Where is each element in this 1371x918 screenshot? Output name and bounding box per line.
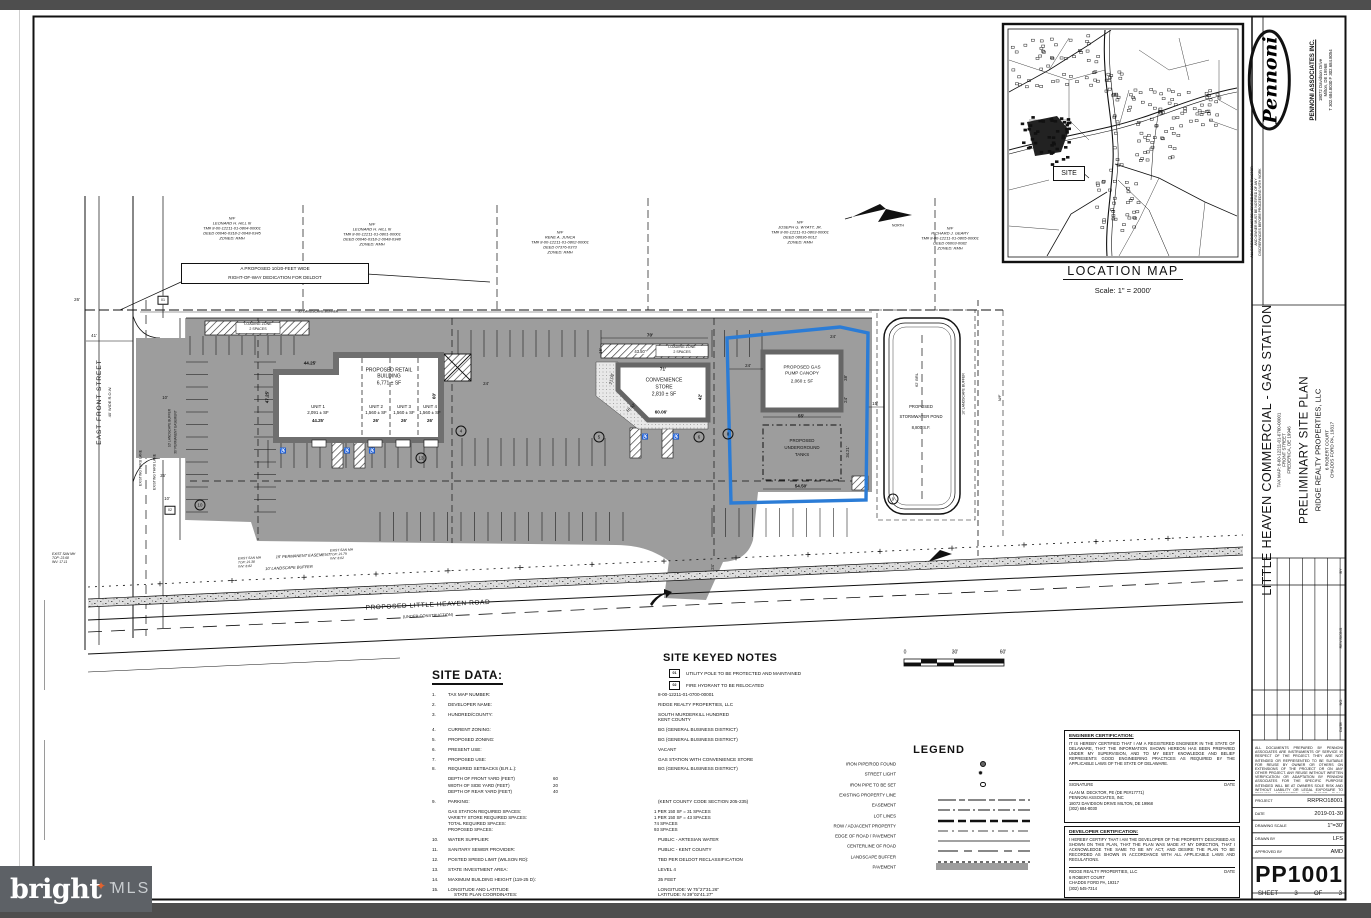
site-data-label-line: SANITARY SEWER PROVIDER: xyxy=(448,847,658,852)
site-data-num: 14. xyxy=(432,877,448,882)
parking-count-bubble: 10 xyxy=(195,500,206,511)
firm-address-block: PENNONI ASSOCIATES INC. 18072 Davidson D… xyxy=(1310,39,1334,120)
site-keyed-notes-section: SITE KEYED NOTES 01UTILITY POLE TO BE PR… xyxy=(663,652,883,693)
site-data-value: 35 FEET xyxy=(658,877,676,882)
map-block xyxy=(1160,93,1163,95)
keyed-note-text: FIRE HYDRANT TO BE RELOCATED xyxy=(686,683,764,688)
map-block xyxy=(1040,68,1043,70)
site-data-label: LONGITUDE AND LATITUDESTATE PLAN COORDIN… xyxy=(448,887,658,898)
dimension-label: UNIT 3 xyxy=(397,405,411,409)
scale-bar: 0 30' 60' xyxy=(903,648,1007,670)
site-data-num: 4. xyxy=(432,727,448,732)
map-block xyxy=(1068,122,1071,124)
map-block xyxy=(1065,128,1068,130)
legend-symbol-centerline xyxy=(936,842,1032,850)
legend-label: PAVEMENT xyxy=(818,865,896,870)
map-block xyxy=(1127,109,1130,111)
map-block xyxy=(1029,146,1032,148)
map-block xyxy=(1062,135,1065,137)
map-block xyxy=(1066,83,1069,85)
legend-symbol-iron-set xyxy=(936,781,986,789)
brightmls-watermark: bright✦™ MLS xyxy=(0,866,152,912)
site-data-row: 9.PARKING:(KENT COUNTY CODE SECTION 205-… xyxy=(432,799,768,804)
site-data-value: LONGITUDE: W 75°27'31.26"LATITUDE: N 39°… xyxy=(658,887,719,898)
info-row: APPROVED BYAMD xyxy=(1252,845,1346,858)
site-data-row: 12.POSTED SPEED LIMIT (WILSON RD):TBD PE… xyxy=(432,857,768,862)
dimension-label: 1,560 ± SF xyxy=(419,411,440,415)
dimension-label: 30' LANDSCAPE BUFFER xyxy=(298,310,338,313)
map-block xyxy=(1018,76,1021,78)
legend-symbol-pavement xyxy=(936,863,1028,871)
map-block xyxy=(1160,137,1163,139)
site-data-row: 2.DEVELOPER NAME:RIDGE REALTY PROPERTIES… xyxy=(432,702,768,707)
parking-count-bubble: 4 xyxy=(456,426,467,437)
pennoni-logo-text: Pennoni xyxy=(1259,36,1281,124)
info-value: RRPRO18001 xyxy=(1307,798,1343,804)
site-data-value: BG (GENERAL BUSINESS DISTRICT) xyxy=(658,766,738,771)
dimension-label: 44.25' xyxy=(312,419,324,423)
map-block xyxy=(1060,118,1063,120)
sheet-total: 3 xyxy=(1339,891,1342,897)
map-block xyxy=(1034,142,1037,144)
dimension-label: 62' BRL xyxy=(915,373,919,387)
parcel-label-line: ZONED: RMH xyxy=(307,242,437,247)
location-map-scale: Scale: 1" = 2000' xyxy=(1095,286,1151,295)
dimension-label: 2,810 ± SF xyxy=(652,393,676,398)
site-data-section: SITE DATA: 1.TAX MAP NUMBER:8-00-12211-0… xyxy=(432,666,768,902)
map-block xyxy=(1028,128,1031,130)
handicap-icon: ♿ xyxy=(280,449,287,455)
site-data-value-line: (KENT COUNTY CODE SECTION 205-235) xyxy=(658,799,748,804)
star-icon: ✦ xyxy=(96,879,106,893)
project-title: LITTLE HEAVEN COMMERCIAL - GAS STATION xyxy=(1260,304,1274,595)
convenience-store-label: CONVENIENCE xyxy=(646,379,683,384)
handicap-icon: ♿ xyxy=(369,449,376,455)
sheet-number: PP1001 xyxy=(1252,861,1346,888)
keyed-note-key: 01 xyxy=(669,669,680,678)
site-data-num: 1. xyxy=(432,692,448,697)
site-data-row: 8.REQUIRED SETBACKS (B.R.L.):BG (GENERAL… xyxy=(432,766,768,771)
dimension-label: 1,560 ± SF xyxy=(393,411,414,415)
site-data-num: 7. xyxy=(432,757,448,762)
map-block xyxy=(1177,134,1180,136)
keyed-note-item: 01UTILITY POLE TO BE PROTECTED AND MAINT… xyxy=(669,669,883,678)
map-block xyxy=(1066,156,1069,158)
parcel-label-line: ZONED: RMH xyxy=(735,240,865,245)
map-block xyxy=(1086,50,1089,52)
dimension-label: UNDERGROUND xyxy=(784,446,819,450)
dimension-label: 2 SPACES xyxy=(248,328,267,332)
site-data-num: 2. xyxy=(432,702,448,707)
map-block xyxy=(1011,46,1014,48)
dimension-label: 24' xyxy=(830,335,836,339)
map-block xyxy=(1147,134,1150,136)
keyed-notes-title: SITE KEYED NOTES xyxy=(663,652,883,664)
map-block xyxy=(1137,140,1140,142)
map-block xyxy=(1214,124,1217,126)
map-block xyxy=(1108,88,1111,90)
map-block xyxy=(1137,202,1140,204)
site-data-label: STATE INVESTMENT AREA: xyxy=(448,867,658,872)
callout-line: RIGHT-OF-WAY DEDICATION FOR DELDOT xyxy=(182,274,368,283)
site-data-subrow: TOTAL REQUIRED SPACES:74 SPACES xyxy=(448,821,768,826)
map-block xyxy=(1055,161,1058,163)
manhole-note: EXIST SAN MHTOP: 23.68INV: 17.11 xyxy=(52,552,75,564)
map-block xyxy=(1116,121,1119,123)
legend-label: IRON PIPE TO BE SET xyxy=(818,782,896,787)
site-data-subrow: GAS STATION REQUIRED SPACES:1 PER 150 SF… xyxy=(448,809,768,814)
map-block xyxy=(1056,80,1059,82)
dimension-label: 44.25' xyxy=(304,362,317,367)
scale-zero: 0 xyxy=(904,651,907,656)
site-data-row: 11.SANITARY SEWER PROVIDER:PUBLIC - KENT… xyxy=(432,847,768,852)
map-block xyxy=(1133,211,1136,213)
site-data-title: SITE DATA: xyxy=(432,668,503,685)
map-block xyxy=(1063,121,1066,123)
map-block xyxy=(1050,152,1053,154)
map-block xyxy=(1040,40,1043,42)
map-block xyxy=(1173,147,1176,149)
site-data-label: PROPOSED ZONING: xyxy=(448,737,658,742)
legend-symbol-easement xyxy=(936,801,1032,809)
map-block xyxy=(1181,112,1184,114)
dimension-label: 10' xyxy=(164,497,169,501)
dimension-label: 24' xyxy=(745,364,751,368)
site-data-sub-value: 40 xyxy=(553,789,558,794)
handicap-icon: ♿ xyxy=(673,435,680,441)
info-row: PROJECTRRPRO18001 xyxy=(1252,795,1346,808)
dimension-label: 2 SPACES xyxy=(672,351,691,355)
dimension-label: EXISTING THRU LANE xyxy=(139,450,142,486)
keyed-note-key: 02 xyxy=(669,681,680,690)
map-block xyxy=(1111,209,1114,211)
dimension-label: 26' xyxy=(401,419,407,423)
map-block xyxy=(1056,130,1059,132)
dimension-label: STORE xyxy=(655,386,672,391)
site-data-value-line: PUBLIC - KENT COUNTY xyxy=(658,847,712,852)
map-block xyxy=(1048,136,1051,138)
legend-label: IRON PIPE/ROD FOUND xyxy=(818,762,896,767)
info-label: APPROVED BY xyxy=(1255,850,1282,854)
map-block xyxy=(1129,94,1132,96)
map-block xyxy=(1036,57,1039,59)
map-block xyxy=(1151,141,1154,143)
dimension-label: 26' xyxy=(74,298,80,302)
legend-label: STREET LIGHT xyxy=(818,772,896,777)
map-block xyxy=(1060,57,1063,59)
site-data-label: POSTED SPEED LIMIT (WILSON RD): xyxy=(448,857,658,862)
map-block xyxy=(1113,147,1116,149)
callout-line: A PROPOSED 10/20-FEET WIDE xyxy=(182,265,368,274)
map-block xyxy=(1021,123,1024,125)
dimension-label: 60.06' xyxy=(655,411,668,416)
site-data-value: BG (GENERAL BUSINESS DISTRICT) xyxy=(658,737,738,742)
dimension-label: 70' xyxy=(647,334,653,339)
site-data-num: 9. xyxy=(432,799,448,804)
site-data-value-line: LATITUDE: N 39°02'41.27" xyxy=(658,892,719,897)
map-block xyxy=(1165,130,1168,132)
site-data-label-line: STATE PLAN COORDINATES: xyxy=(448,892,658,897)
site-data-label: MAXIMUM BUILDING HEIGHT (119-25 D): xyxy=(448,877,658,882)
engineer-cert-title: ENGINEER CERTIFICATION: xyxy=(1069,734,1235,739)
legend-label: EXISTING PROPERTY LINE xyxy=(818,792,896,797)
site-data-row: 15.LONGITUDE AND LATITUDESTATE PLAN COOR… xyxy=(432,887,768,898)
developer-name: RIDGE REALTY PROPERTIES, LLC xyxy=(1069,869,1137,874)
site-data-label-line: WATER SUPPLIER: xyxy=(448,837,658,842)
dimension-disclaimer: ALL DIMENSIONS MUST BE VERIFIED BY CONTR… xyxy=(1251,166,1263,257)
map-block xyxy=(1208,104,1211,106)
info-row: DRAWN BYLFS xyxy=(1252,833,1346,846)
keyed-note-marker: 02 xyxy=(165,506,176,515)
map-block xyxy=(1126,201,1129,203)
gas-canopy-label: PROPOSED GAS xyxy=(783,366,820,371)
site-data-sub-value: 1 PER 150 SF = 43 SPACES xyxy=(654,815,711,820)
dimension-label: STORMWATER POND xyxy=(900,415,943,419)
info-value: 2019-01-30 xyxy=(1314,811,1343,817)
map-block xyxy=(1085,77,1088,79)
map-block xyxy=(1187,91,1190,93)
site-data-row: 13.STATE INVESTMENT AREA:LEVEL 4 xyxy=(432,867,768,872)
map-block xyxy=(1085,40,1088,42)
location-map-drawing xyxy=(1009,30,1237,256)
client-address2: CHADDS FORD PA, 19317 xyxy=(1330,389,1335,512)
manhole-note: EXIST SAN MHTOP: 21.79INV: 8.02 xyxy=(330,547,354,560)
row-dedication-callout: A PROPOSED 10/20-FEET WIDERIGHT-OF-WAY D… xyxy=(181,263,369,284)
map-block xyxy=(1101,226,1104,228)
site-data-subrow: VARIETY STORE REQUIRED SPACES:1 PER 150 … xyxy=(448,815,768,820)
site-data-label-line: PRESENT USE: xyxy=(448,747,658,752)
legend-symbol-iron-found xyxy=(936,760,986,768)
map-block xyxy=(1098,189,1101,191)
site-data-label: SANITARY SEWER PROVIDER: xyxy=(448,847,658,852)
map-block xyxy=(1015,83,1018,85)
revisions-by-label: BY xyxy=(1339,568,1343,573)
site-data-label-line: PARKING: xyxy=(448,799,658,804)
site-data-value: BG (GENERAL BUSINESS DISTRICT) xyxy=(658,727,738,732)
map-block xyxy=(1148,104,1151,106)
site-data-label-line: REQUIRED SETBACKS (B.R.L.): xyxy=(448,766,658,771)
dimension-label: 24' xyxy=(844,397,848,403)
site-data-sub-value: 20 xyxy=(553,783,558,788)
map-block xyxy=(1121,229,1124,231)
dimension-label: 40' WIDE R.O.W. xyxy=(108,387,112,418)
map-block xyxy=(1116,99,1119,101)
site-data-label-line: POSTED SPEED LIMIT (WILSON RD): xyxy=(448,857,658,862)
map-block xyxy=(1153,91,1156,93)
site-data-subrow: DEPTH OF REAR YARD (FEET)40 xyxy=(448,789,768,794)
map-block xyxy=(1144,151,1147,153)
info-label: PROJECT xyxy=(1255,799,1273,803)
keyed-note-text: UTILITY POLE TO BE PROTECTED AND MAINTAI… xyxy=(686,671,801,676)
map-block xyxy=(1141,101,1144,103)
map-block xyxy=(1126,214,1129,216)
dimension-label: 6,771 ± SF xyxy=(377,382,401,387)
site-data-value-line: KENT COUNTY xyxy=(658,717,729,722)
info-label: DRAWN BY xyxy=(1255,837,1275,841)
site-data-value-line: PUBLIC - ARTESIAN WATER xyxy=(658,837,719,842)
site-data-label-line: CURRENT ZONING: xyxy=(448,727,658,732)
legend-symbol-buffer xyxy=(936,853,1032,861)
site-data-value: LEVEL 4 xyxy=(658,867,676,872)
site-data-sub-label: VARIETY STORE REQUIRED SPACES: xyxy=(448,815,654,820)
map-block xyxy=(1042,45,1045,47)
map-block xyxy=(1107,73,1110,75)
map-block xyxy=(1040,47,1043,49)
location-map-title: LOCATION MAP xyxy=(1063,264,1183,280)
map-block xyxy=(1042,120,1045,122)
brightmls-brand: bright✦™ xyxy=(10,874,101,905)
revisions-no-label: NO. xyxy=(1339,699,1343,706)
dimension-label: 1,560 ± SF xyxy=(365,411,386,415)
site-data-label: DEVELOPER NAME: xyxy=(448,702,658,707)
site-data-subrow: DEPTH OF FRONT YARD (FEET)60 xyxy=(448,776,768,781)
map-block xyxy=(1176,116,1179,118)
parking-count-bubble: 13 xyxy=(416,453,427,464)
pennoni-logo: Pennoni xyxy=(1246,28,1297,132)
site-data-label: PRESENT USE: xyxy=(448,747,658,752)
map-block xyxy=(1069,39,1072,41)
developer-cert-body: I HEREBY CERTIFY THAT I AM THE DEVELOPER… xyxy=(1069,837,1235,863)
date-label: DATE xyxy=(1224,869,1235,874)
dimension-label: 26' xyxy=(427,419,433,423)
site-data-sub-value: 93 SPACES xyxy=(654,827,678,832)
site-data-value: VACANT xyxy=(658,747,676,752)
client-name: RIDGE REALTY PROPERTIES, LLC xyxy=(1315,389,1324,512)
cert-contact-line: (302) 545-7314 xyxy=(1069,886,1235,891)
parking-count-bubble: 6 xyxy=(694,432,705,443)
legend-label: EDGE OF ROAD / PAVEMENT xyxy=(818,834,896,839)
map-block xyxy=(1094,79,1097,81)
map-block xyxy=(1066,131,1069,133)
dimension-label: UNIT 2 xyxy=(369,405,383,409)
map-block xyxy=(1150,88,1153,90)
legend-symbol-edge-road xyxy=(936,832,1032,840)
keyed-note-item: 02FIRE HYDRANT TO BE RELOCATED xyxy=(669,681,883,690)
map-block xyxy=(1172,132,1175,134)
map-block xyxy=(1122,224,1125,226)
info-label: DRAWING SCALE xyxy=(1255,824,1287,828)
map-block xyxy=(1054,44,1057,46)
revisions-date-label: DATE xyxy=(1339,722,1343,732)
site-data-num: 3. xyxy=(432,712,448,723)
map-block xyxy=(1051,144,1054,146)
dimension-label: 42' xyxy=(699,394,704,400)
dimension-label: 41' xyxy=(91,334,97,338)
map-block xyxy=(1209,90,1212,92)
map-block xyxy=(1146,139,1149,141)
reuse-note: ALL DOCUMENTS PREPARED BY PENNONI ASSOCI… xyxy=(1255,746,1343,793)
map-block xyxy=(1216,93,1219,95)
disclaimer-line: DISCREPANCIES BEFORE PROCEEDING WITH WOR… xyxy=(1259,166,1263,257)
info-row: DRAWING SCALE1"=30' xyxy=(1252,820,1346,833)
dimension-label: BUILDING xyxy=(377,375,401,380)
keyed-note-marker: 01 xyxy=(158,296,169,305)
legend-label: CENTERLINE OF ROAD xyxy=(818,844,896,849)
dimension-label: 30' PERMANENT EASEMENT xyxy=(174,410,177,453)
map-block xyxy=(1139,92,1142,94)
sheet-of-row: SHEET 3 OF 3 xyxy=(1258,891,1342,897)
map-block xyxy=(1024,129,1027,131)
site-data-label: CURRENT ZONING: xyxy=(448,727,658,732)
site-data-value: GAS STATION WITH CONVENIENCE STORE xyxy=(658,757,753,762)
dimension-label: 15' xyxy=(599,348,603,353)
dimension-label: 43.50' xyxy=(633,350,646,354)
site-data-value-line: BG (GENERAL BUSINESS DISTRICT) xyxy=(658,737,738,742)
map-block xyxy=(1171,91,1174,93)
map-block xyxy=(1134,89,1137,91)
parcel-owner-label: N/FRICHARD J. GEARYTM# 8-00-12211-01-080… xyxy=(885,226,1015,251)
site-data-value: SOUTH MURDERKILL HUNDREDKENT COUNTY xyxy=(658,712,729,723)
site-data-value: RIDGE REALTY PROPERTIES, LLC xyxy=(658,702,733,707)
site-data-num: 12. xyxy=(432,857,448,862)
signature-label: SIGNATURE xyxy=(1069,782,1093,787)
site-data-subrow: WIDTH OF SIDE YARD (FEET)20 xyxy=(448,783,768,788)
map-block xyxy=(1136,211,1139,213)
location-map-site-box: SITE xyxy=(1053,166,1085,181)
map-block xyxy=(1036,130,1039,132)
dimension-label: UNIT 4 xyxy=(423,405,437,409)
map-block xyxy=(1146,159,1149,161)
legend-label: EASEMENT xyxy=(818,803,896,808)
legend-section: LEGEND IRON PIPE/ROD FOUNDSTREET LIGHT✹I… xyxy=(818,744,1048,889)
map-block xyxy=(1095,61,1098,63)
site-data-value: TBD PER DELDOT RECLASSIFICATION xyxy=(658,857,743,862)
map-block xyxy=(1218,97,1221,99)
east-front-street-label: EAST FRONT STREET xyxy=(97,359,104,444)
map-block xyxy=(1025,86,1028,88)
map-block xyxy=(1096,206,1099,208)
map-block xyxy=(1090,84,1093,86)
legend-label: LANDSCAPE BUFFER xyxy=(818,854,896,859)
map-block xyxy=(1215,101,1218,103)
map-block xyxy=(1198,110,1201,112)
site-data-row: 6.PRESENT USE:VACANT xyxy=(432,747,768,752)
dimension-label: 24' xyxy=(711,564,715,569)
dimension-label: 10' LANDSCAPE BUFFER xyxy=(962,373,966,415)
map-block xyxy=(1051,120,1054,122)
site-data-row: 14.MAXIMUM BUILDING HEIGHT (119-25 D):35… xyxy=(432,877,768,882)
map-block xyxy=(1024,44,1027,46)
manhole-note: EXIST SAN MHTOP: 21.38INV: 8.82 xyxy=(238,555,262,568)
map-block xyxy=(1161,138,1164,140)
legend-symbol-street-light: ✹ xyxy=(936,770,983,778)
legend-title: LEGEND xyxy=(896,744,982,756)
site-data-value-line: VACANT xyxy=(658,747,676,752)
map-block xyxy=(1068,141,1071,143)
site-data-value-line: 35 FEET xyxy=(658,877,676,882)
map-block xyxy=(1096,80,1099,82)
site-data-value-line: BG (GENERAL BUSINESS DISTRICT) xyxy=(658,727,738,732)
map-block xyxy=(1180,125,1183,127)
map-block xyxy=(1189,120,1192,122)
site-data-value-line: LEVEL 4 xyxy=(658,867,676,872)
project-taxmap-block: TAX MAP: 8-00-12211-01-0700-00001 FRONT … xyxy=(1276,413,1291,488)
parcel-label-line: ZONED: RMH xyxy=(885,246,1015,251)
map-block xyxy=(1097,55,1100,57)
dimension-label: 71' xyxy=(660,368,666,373)
sheet-page: 3 xyxy=(1294,891,1297,897)
site-data-value: PUBLIC - ARTESIAN WATER xyxy=(658,837,719,842)
site-data-label: HUNDRED/COUNTY: xyxy=(448,712,658,723)
parcel-owner-label: N/FJOSEPH G. WYATT, JR.TM# 8-00-12211-01… xyxy=(735,220,865,245)
site-data-sub-value: 60 xyxy=(553,776,558,781)
map-block xyxy=(1113,180,1116,182)
map-block xyxy=(1161,111,1164,113)
dimension-label: 2,091 ± SF xyxy=(307,411,328,415)
map-block xyxy=(1136,154,1139,156)
map-block xyxy=(1040,85,1043,87)
site-data-label: PROPOSED USE: xyxy=(448,757,658,762)
